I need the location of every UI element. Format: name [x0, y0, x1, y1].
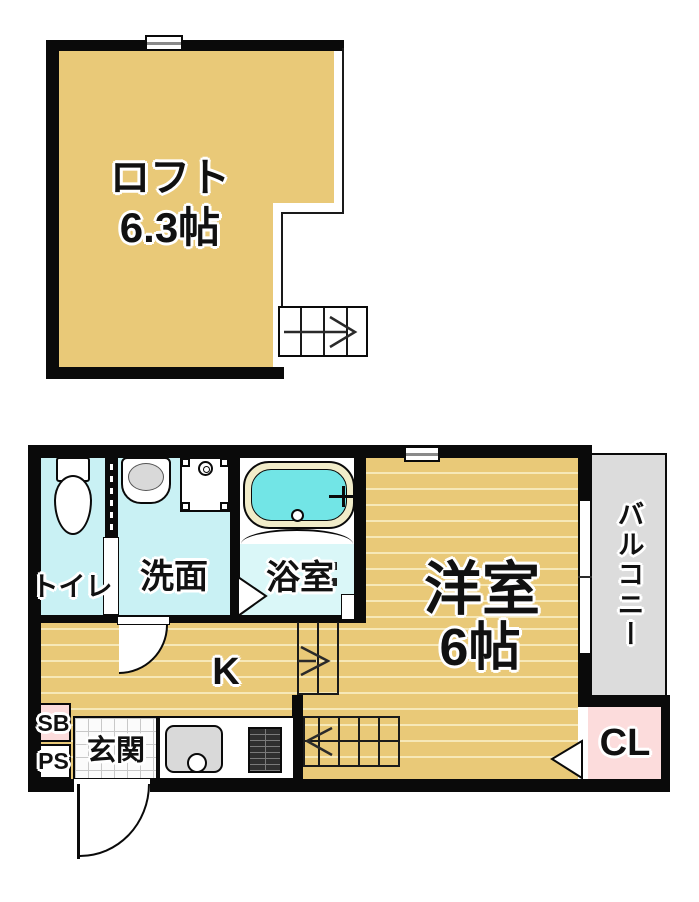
stove-icon	[248, 727, 282, 773]
stairs-upper-left-line	[297, 622, 299, 695]
outer-wall-top	[28, 445, 590, 458]
washer-pan-icon	[180, 457, 230, 512]
bathroom-label: 浴室	[240, 559, 360, 597]
top-window-icon	[404, 446, 440, 462]
bathtub-faucet-icon	[342, 486, 345, 507]
entrance-door-arc	[80, 784, 150, 857]
entrance-label: 玄関	[76, 733, 156, 769]
washroom-door-leaf	[117, 616, 170, 625]
stair-tread	[323, 308, 325, 355]
loft-label: ロフト	[90, 156, 250, 200]
entrance-door-leaf	[77, 784, 80, 859]
loft-notch-line-left	[281, 212, 283, 308]
loft-wall-bottom	[46, 367, 284, 379]
loft-notch-line-right	[342, 48, 344, 214]
stairs-lower	[303, 716, 400, 767]
pan-drain-icon	[198, 461, 213, 476]
stair-tread	[300, 308, 302, 355]
loft-stairs	[278, 306, 368, 357]
loft-notch-line-top	[281, 212, 344, 214]
western-room-size-label: 6帖	[380, 620, 580, 676]
loft-wall-top	[46, 40, 344, 51]
western-room-label: 洋室	[382, 558, 582, 622]
stair-tread	[346, 308, 348, 355]
sliding-door-dash	[110, 464, 113, 536]
outer-wall-left	[28, 445, 41, 792]
pan-corner	[220, 458, 229, 467]
pipe-space-label: PS	[36, 747, 71, 775]
kitchen-sink-drain-icon	[187, 753, 207, 773]
floor-plan: ロフト 6.3帖	[0, 0, 699, 902]
pan-corner	[220, 502, 229, 511]
loft-window-icon	[145, 35, 183, 51]
kitchen-label: K	[186, 650, 266, 694]
loft-wall-left	[46, 40, 59, 379]
toilet-label: トイレ	[32, 570, 112, 604]
wash-basin-bowl	[128, 463, 164, 491]
bathtub-drain-icon	[291, 509, 304, 522]
closet-right-wall	[661, 695, 670, 792]
bath-threshold	[341, 594, 355, 620]
top-window-mullion	[406, 453, 438, 456]
stair-mid-line	[305, 740, 398, 742]
shoe-box-label: SB	[36, 709, 71, 737]
outer-wall-right-upper	[578, 445, 592, 501]
loft-size-label: 6.3帖	[90, 205, 250, 251]
pan-corner	[181, 458, 190, 467]
closet-label: CL	[588, 721, 662, 765]
balcony-label: バルコニー	[610, 500, 646, 650]
stairs-upper-right-line	[337, 622, 339, 695]
balcony-closet-wall	[578, 695, 670, 707]
stairs-upper-bottom-line	[297, 693, 339, 695]
closet-door-track	[578, 707, 588, 779]
wash-basin-icon	[121, 457, 171, 504]
pan-corner	[181, 502, 190, 511]
stairs-upper-center-line	[317, 622, 319, 695]
loft-window-mullion	[147, 42, 181, 45]
washroom-label: 洗面	[114, 558, 234, 596]
